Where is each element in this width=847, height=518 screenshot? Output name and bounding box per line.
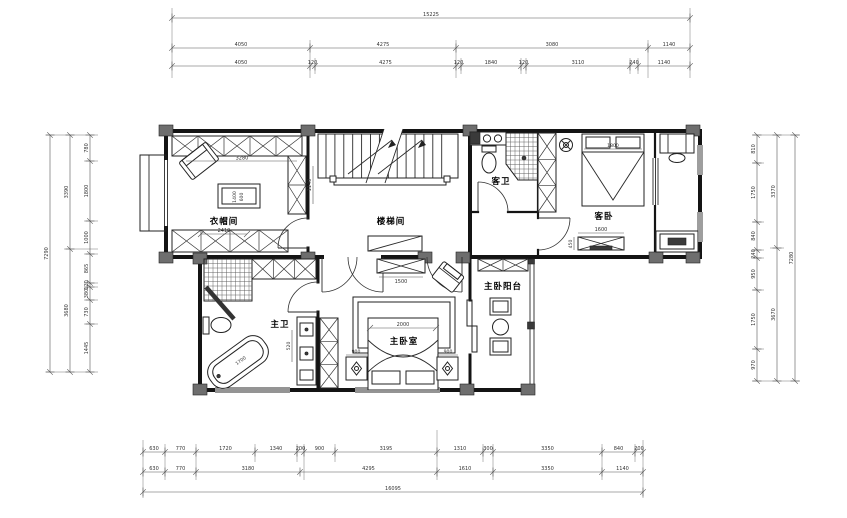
master-tv-bench: 1500 bbox=[377, 259, 425, 285]
svg-text:2410: 2410 bbox=[218, 228, 231, 234]
dimension-label: 810 bbox=[751, 144, 757, 154]
dimension-label: 4275 bbox=[377, 42, 390, 48]
dimension-label: 3350 bbox=[541, 466, 554, 472]
guest-bed-dim: 1800 bbox=[607, 143, 619, 149]
room-master-bedroom: 2000 900 900 1500 主卧室 bbox=[346, 259, 464, 390]
dimension-label: 1140 bbox=[616, 466, 629, 472]
dimension-label: 15225 bbox=[423, 12, 439, 18]
wardrobe-hatch bbox=[538, 133, 556, 212]
nightstand-left: 900 bbox=[346, 349, 367, 380]
dimension-label: 1750 bbox=[751, 313, 757, 326]
room-label-master-balcony: 主卧阳台 bbox=[484, 281, 522, 292]
dimension-label: 780 bbox=[84, 143, 90, 153]
guest-tv-depth-dim: 450 bbox=[568, 240, 574, 249]
dimension-label: 3680 bbox=[64, 304, 70, 317]
svg-text:900: 900 bbox=[352, 349, 361, 355]
room-label-master-bath: 主卫 bbox=[270, 319, 289, 330]
balcony-slider bbox=[467, 300, 477, 352]
floor-plan-canvas: 1522540504275308011404050120427512018401… bbox=[0, 0, 847, 518]
balcony-chair-bottom bbox=[490, 338, 511, 355]
dimension-label: 120 bbox=[308, 60, 318, 66]
svg-text:3280: 3280 bbox=[236, 156, 249, 162]
master-tv-dim: 1500 bbox=[395, 279, 408, 285]
room-label-stairwell: 楼梯间 bbox=[377, 216, 406, 227]
dimension-label: 865 bbox=[84, 264, 90, 274]
dimension-label: 3390 bbox=[64, 186, 70, 199]
room-master-balcony: 主卧阳台 bbox=[467, 281, 522, 355]
dimension-label: 7280 bbox=[789, 252, 795, 265]
room-label-master-bedroom: 主卧室 bbox=[390, 336, 419, 347]
dimension-label: 200 bbox=[296, 446, 306, 452]
dimension-chain: 33703670 bbox=[771, 132, 781, 384]
guest-tv-dim: 1600 bbox=[595, 227, 608, 233]
dimension-label: 770 bbox=[176, 446, 186, 452]
dimension-label: 1140 bbox=[663, 42, 676, 48]
dimension-label: 4050 bbox=[235, 60, 248, 66]
east-strip bbox=[656, 134, 698, 252]
master-bed-dim: 2000 bbox=[397, 322, 410, 328]
dimension-label: 1140 bbox=[658, 60, 671, 66]
dimension-label: 770 bbox=[176, 466, 186, 472]
dimension-label: 1750 bbox=[751, 186, 757, 199]
dimension-chain: 40501204275120184012031102401140 bbox=[169, 60, 693, 70]
dimension-chain: 7290 bbox=[44, 132, 54, 375]
pillar bbox=[649, 252, 663, 263]
bathtub: 1700 bbox=[202, 330, 273, 393]
dimension-label: 1310 bbox=[454, 446, 467, 452]
dimension-chain: 7280 bbox=[789, 132, 799, 384]
dimension-label: 630 bbox=[149, 466, 159, 472]
dimension-label: 900 bbox=[315, 446, 325, 452]
door-master-hall-left bbox=[322, 257, 357, 292]
lounge-chair bbox=[432, 261, 465, 293]
ceiling-fan-icon bbox=[560, 139, 573, 152]
window-guest-east bbox=[652, 158, 659, 205]
dimension-label: 120 bbox=[454, 60, 464, 66]
dimension-chain: 780180010008651203807301445 bbox=[84, 132, 94, 375]
dimension-chain: 15225 bbox=[169, 12, 693, 22]
dimension-chain: 63077031804295161033501140 bbox=[140, 466, 646, 476]
pillar bbox=[193, 384, 207, 395]
pillar bbox=[301, 125, 315, 136]
dimension-chain: 81017508402409501750970 bbox=[751, 132, 761, 384]
dimension-label: 3080 bbox=[546, 42, 559, 48]
dimension-chain: 16095 bbox=[140, 486, 646, 496]
room-label-guest-bath: 客卫 bbox=[490, 176, 510, 187]
floor-plan-page: 1522540504275308011404050120427512018401… bbox=[0, 0, 847, 518]
door-master-bath bbox=[288, 282, 318, 312]
dimension-label: 840 bbox=[751, 231, 757, 241]
wardrobe-hatch bbox=[288, 156, 306, 214]
room-label-cloakroom: 衣帽间 bbox=[210, 216, 239, 227]
dimension-label: 3670 bbox=[771, 308, 777, 321]
dimension-label: 16095 bbox=[385, 486, 401, 492]
balcony-table bbox=[493, 319, 509, 335]
dimension-label: 120 bbox=[519, 60, 529, 66]
dimension-label: 3110 bbox=[572, 60, 585, 66]
guest-bed: 1800 bbox=[582, 134, 644, 206]
dimension-label: 1720 bbox=[219, 446, 232, 452]
dimension-label: 3195 bbox=[380, 446, 393, 452]
nightstand-right: 900 bbox=[437, 349, 458, 380]
master-vanity: 520 bbox=[286, 317, 316, 385]
dimension-label: 970 bbox=[751, 360, 757, 370]
door-guest-bedroom bbox=[538, 218, 570, 250]
dimension-label: 380 bbox=[84, 289, 90, 299]
master-toilet bbox=[203, 317, 231, 334]
guest-tv-bench: 1600 450 bbox=[568, 227, 624, 250]
svg-text:1140: 1140 bbox=[307, 179, 313, 192]
dimension-label: 4295 bbox=[362, 466, 375, 472]
dimension-label: 1445 bbox=[84, 342, 90, 355]
pillar bbox=[460, 384, 474, 395]
dimension-chain: 6307701720134020090031951310300335084020… bbox=[140, 446, 646, 456]
stair-bench bbox=[368, 236, 422, 251]
dimension-label: 200 bbox=[634, 446, 644, 452]
dimension-label: 950 bbox=[751, 269, 757, 279]
room-label-guest-bedroom: 客卧 bbox=[593, 211, 613, 222]
dimension-label: 120 bbox=[84, 280, 90, 290]
desk bbox=[660, 134, 694, 163]
guest-shower bbox=[506, 133, 538, 180]
dimension-label: 300 bbox=[483, 446, 493, 452]
wardrobe-hatch bbox=[252, 259, 316, 279]
dimension-chain: 4050427530801140 bbox=[169, 42, 693, 52]
balcony-chair-top bbox=[490, 298, 511, 315]
pillar bbox=[521, 384, 535, 395]
dimension-label: 3370 bbox=[771, 185, 777, 198]
dimension-label: 730 bbox=[84, 307, 90, 317]
dimension-label: 3350 bbox=[541, 446, 554, 452]
pillar bbox=[159, 125, 173, 136]
dimension-label: 1340 bbox=[270, 446, 283, 452]
tv-cabinet bbox=[656, 231, 698, 252]
wardrobe-hatch bbox=[478, 259, 528, 271]
dimension-label: 1840 bbox=[485, 60, 498, 66]
vanity-dim: 520 bbox=[286, 342, 292, 351]
pillar bbox=[159, 252, 173, 263]
room-guest-bath: 客卫 bbox=[470, 132, 538, 212]
island-ottoman: 1400 600 bbox=[218, 184, 260, 208]
dimension-label: 240 bbox=[629, 60, 639, 66]
dimension-chain: 33903680 bbox=[64, 132, 74, 375]
dimension-label: 4275 bbox=[379, 60, 392, 66]
dimension-label: 630 bbox=[149, 446, 159, 452]
stair-handrail bbox=[334, 178, 446, 185]
island-width-dim: 600 bbox=[239, 193, 245, 202]
pillar bbox=[686, 252, 700, 263]
wardrobe-hatch bbox=[320, 318, 338, 388]
dimension-label: 840 bbox=[614, 446, 624, 452]
master-shower bbox=[204, 259, 252, 319]
dimension-label: 1610 bbox=[459, 466, 472, 472]
dimension-label: 3180 bbox=[242, 466, 255, 472]
dimension-label: 1800 bbox=[84, 185, 90, 198]
guest-toilet bbox=[482, 146, 496, 173]
dimension-label: 240 bbox=[751, 249, 757, 259]
pillar bbox=[456, 252, 470, 263]
bay-window bbox=[140, 155, 169, 231]
svg-text:900: 900 bbox=[444, 349, 453, 355]
master-bed: 2000 bbox=[367, 318, 439, 390]
dimension-label: 4050 bbox=[235, 42, 248, 48]
island-length-dim: 1400 bbox=[232, 191, 238, 203]
window-balcony-east bbox=[528, 259, 535, 390]
dimension-label: 7290 bbox=[44, 247, 50, 260]
dimension-label: 1000 bbox=[84, 231, 90, 244]
